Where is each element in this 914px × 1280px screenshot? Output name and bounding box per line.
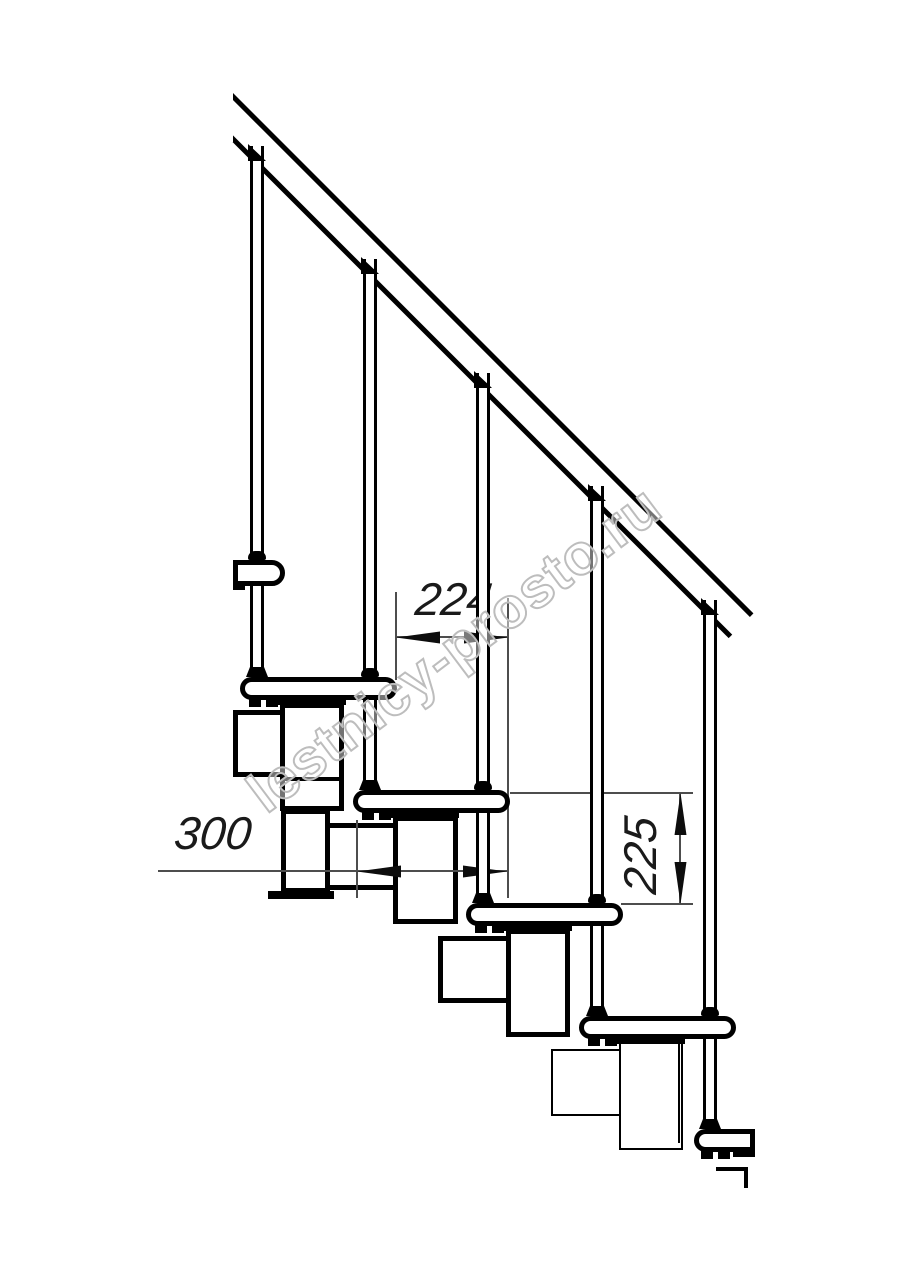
baluster-3-foot	[472, 893, 494, 903]
tread-2-bracket	[266, 698, 278, 707]
module-hook-vertical	[744, 1167, 748, 1188]
baluster-4-foot	[586, 1006, 608, 1016]
module-joint-line	[282, 777, 342, 781]
baluster-2	[363, 259, 377, 780]
tread-5	[579, 1016, 736, 1039]
baluster-5-foot	[699, 1119, 721, 1129]
dim-225-arrow-down	[674, 862, 687, 904]
staircase-drawing: 224 300 225	[0, 0, 914, 1280]
module-box-step5-tall	[619, 1042, 683, 1150]
dim-224-label: 224	[395, 572, 513, 626]
dim-224-arrow-left	[396, 631, 440, 644]
dim-225-label: 225	[613, 802, 667, 908]
tread-2	[240, 677, 397, 700]
tread-2-underbar	[278, 698, 346, 705]
module-box-step4-tall	[506, 929, 570, 1037]
module-box-step2-tall	[280, 703, 344, 811]
baluster-2-foot	[359, 780, 381, 790]
baluster-1	[250, 146, 264, 667]
tread-5-bracket	[588, 1037, 600, 1046]
tread-3	[353, 790, 510, 813]
tread-2-bracket	[249, 698, 261, 707]
module-box-step3-wide	[325, 823, 403, 890]
tread-5-underbar	[617, 1037, 685, 1044]
handrail-mask-left	[196, 84, 233, 142]
tread-4-bracket	[475, 924, 487, 933]
baluster-3-collar	[474, 781, 492, 790]
dim-224-ext-right	[507, 598, 509, 898]
baluster-5	[703, 600, 717, 1119]
module-box-step4-wide	[438, 936, 515, 1003]
tread-6-bracket	[701, 1150, 713, 1159]
tread-3-bracket	[379, 811, 391, 820]
dim-300-ext-left	[356, 820, 358, 898]
tread-1-cut-mark	[233, 583, 245, 590]
tread-4-underbar	[504, 924, 572, 931]
baluster-3	[476, 373, 490, 893]
tread-6-underbar	[733, 1148, 755, 1157]
handrail-mask-right	[756, 592, 826, 687]
tread-3-bracket	[362, 811, 374, 820]
baluster-4-collar	[588, 894, 606, 903]
baluster-4	[590, 486, 604, 1006]
baluster-1-foot	[246, 667, 268, 677]
dim-300-label: 300	[154, 806, 272, 860]
module-box-step5-wide	[551, 1049, 629, 1116]
baluster-1-collar	[248, 551, 266, 560]
module-base-bar	[268, 891, 334, 899]
tread-4	[466, 903, 623, 926]
tread-6-bracket	[718, 1150, 730, 1159]
baluster-2-collar	[361, 668, 379, 677]
module-edge-line	[678, 1043, 680, 1143]
tread-3-underbar	[391, 811, 459, 818]
tread-5-bracket	[605, 1037, 617, 1046]
dim-225-arrow-up	[674, 793, 687, 835]
dim-300-leader	[158, 870, 509, 872]
module-box-step2-lower	[281, 809, 330, 893]
tread-4-bracket	[492, 924, 504, 933]
baluster-5-collar	[701, 1007, 719, 1016]
